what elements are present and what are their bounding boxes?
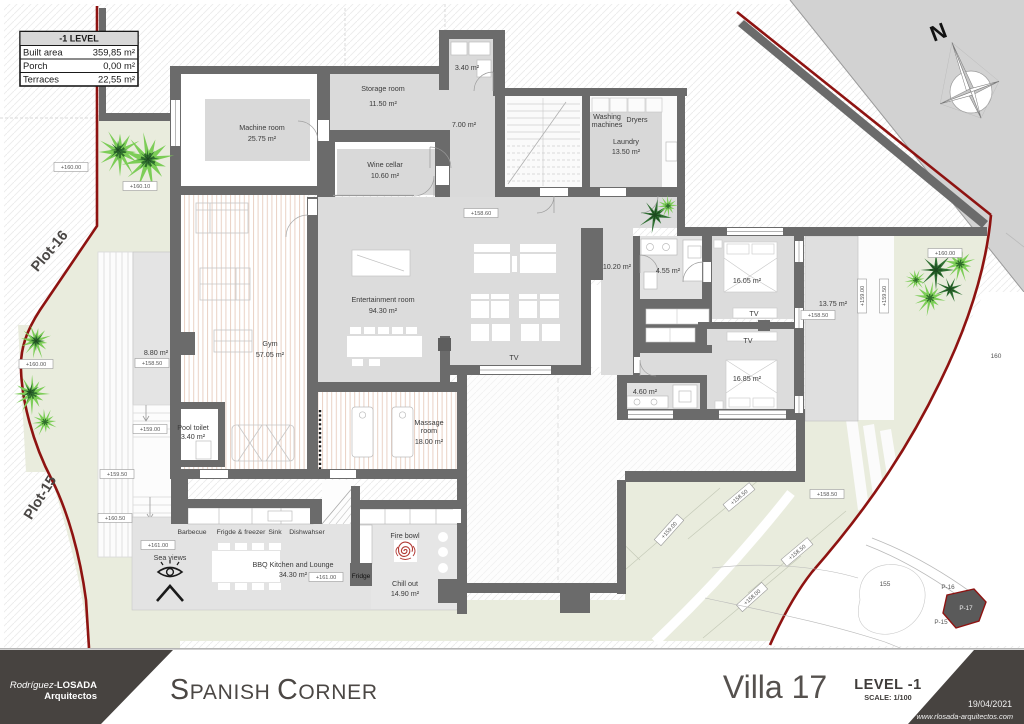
svg-text:3.40 m²: 3.40 m²: [455, 63, 480, 72]
svg-text:Storage room: Storage room: [361, 84, 405, 93]
svg-text:Machine room: Machine room: [239, 123, 285, 132]
svg-text:+160.00: +160.00: [935, 251, 955, 257]
svg-text:LEVEL -1: LEVEL -1: [854, 677, 921, 693]
svg-text:11.50 m²: 11.50 m²: [369, 99, 397, 108]
svg-text:Built area: Built area: [23, 47, 63, 58]
svg-text:Sea views: Sea views: [154, 553, 187, 562]
svg-text:+159.50: +159.50: [882, 286, 888, 306]
svg-text:0,00 m²: 0,00 m²: [103, 60, 135, 71]
svg-text:SCALE: 1/100: SCALE: 1/100: [864, 693, 911, 702]
svg-text:P-15: P-15: [934, 619, 948, 626]
svg-text:359,85 m²: 359,85 m²: [93, 47, 135, 58]
svg-text:+161.00: +161.00: [148, 543, 168, 549]
svg-text:Gym: Gym: [262, 339, 277, 348]
svg-text:TV: TV: [509, 353, 518, 362]
svg-text:10.20 m²: 10.20 m²: [603, 262, 632, 271]
svg-text:94.30 m²: 94.30 m²: [369, 306, 398, 315]
svg-text:4.60 m²: 4.60 m²: [633, 387, 658, 396]
svg-text:TV: TV: [749, 309, 758, 318]
svg-text:+158.60: +158.60: [100, 495, 120, 501]
svg-text:Arquitectos: Arquitectos: [44, 691, 97, 702]
svg-text:www.rlosada-arquitectos.com: www.rlosada-arquitectos.com: [916, 712, 1013, 721]
svg-text:Fridge: Fridge: [352, 573, 371, 580]
svg-text:BBQ Kitchen and Lounge: BBQ Kitchen and Lounge: [252, 560, 333, 569]
svg-text:Wine cellar: Wine cellar: [367, 160, 403, 169]
svg-text:+159.50: +159.50: [107, 472, 127, 478]
svg-text:Terraces: Terraces: [23, 74, 59, 85]
svg-text:Fire bowl: Fire bowl: [390, 531, 420, 540]
svg-text:+160.50: +160.50: [105, 516, 125, 522]
svg-text:16.85 m²: 16.85 m²: [733, 374, 762, 383]
svg-text:+160.10: +160.10: [130, 184, 150, 190]
svg-text:Laundry: Laundry: [613, 137, 639, 146]
svg-text:13.75 m²: 13.75 m²: [819, 299, 848, 308]
svg-text:Pool toilet: Pool toilet: [177, 423, 209, 432]
svg-text:+158.50: +158.50: [142, 361, 162, 367]
svg-text:+160.00: +160.00: [61, 165, 81, 171]
svg-text:+159.00: +159.00: [140, 427, 160, 433]
svg-text:3.40 m²: 3.40 m²: [181, 432, 206, 441]
svg-text:155: 155: [880, 581, 891, 588]
svg-text:P-17: P-17: [959, 605, 973, 612]
svg-text:Entertainment room: Entertainment room: [351, 295, 414, 304]
svg-text:Rodríguez-LOSADA: Rodríguez-LOSADA: [10, 680, 97, 691]
svg-text:+159.00: +159.00: [860, 286, 866, 306]
svg-text:57.05 m²: 57.05 m²: [256, 350, 285, 359]
svg-text:Sink: Sink: [268, 529, 282, 536]
svg-text:22,55 m²: 22,55 m²: [98, 74, 135, 85]
svg-text:7.00 m²: 7.00 m²: [452, 120, 477, 129]
svg-text:Barbecue: Barbecue: [177, 529, 206, 536]
svg-text:Villa 17: Villa 17: [723, 669, 827, 705]
svg-text:18.00 m²: 18.00 m²: [415, 437, 444, 446]
svg-text:Dishwahser: Dishwahser: [289, 529, 325, 536]
svg-text:+158.50: +158.50: [808, 313, 828, 319]
svg-text:160: 160: [991, 353, 1002, 360]
svg-text:Dryers: Dryers: [626, 115, 648, 124]
svg-text:Porch: Porch: [23, 60, 48, 71]
svg-text:13.50 m²: 13.50 m²: [612, 147, 641, 156]
svg-text:16.05 m²: 16.05 m²: [733, 276, 762, 285]
svg-text:P-16: P-16: [941, 584, 955, 591]
svg-text:34.30 m²: 34.30 m²: [279, 570, 308, 579]
svg-text:Chill out: Chill out: [392, 579, 418, 588]
svg-text:+160.00: +160.00: [26, 362, 46, 368]
svg-text:+158.50: +158.50: [817, 492, 837, 498]
svg-text:14.90 m²: 14.90 m²: [391, 589, 420, 598]
svg-text:TV: TV: [743, 336, 752, 345]
svg-text:Frigde & freezer: Frigde & freezer: [217, 529, 266, 536]
svg-text:10.60 m²: 10.60 m²: [371, 171, 400, 180]
svg-text:+161.00: +161.00: [316, 575, 336, 581]
svg-text:room: room: [421, 426, 437, 435]
svg-text:4.55 m²: 4.55 m²: [656, 266, 681, 275]
svg-text:8.80 m²: 8.80 m²: [144, 348, 169, 357]
svg-text:-1 LEVEL: -1 LEVEL: [59, 34, 99, 44]
svg-text:+158.60: +158.60: [471, 211, 491, 217]
svg-text:25.75 m²: 25.75 m²: [248, 134, 277, 143]
svg-text:machines: machines: [592, 120, 623, 129]
svg-text:19/04/2021: 19/04/2021: [968, 699, 1012, 709]
